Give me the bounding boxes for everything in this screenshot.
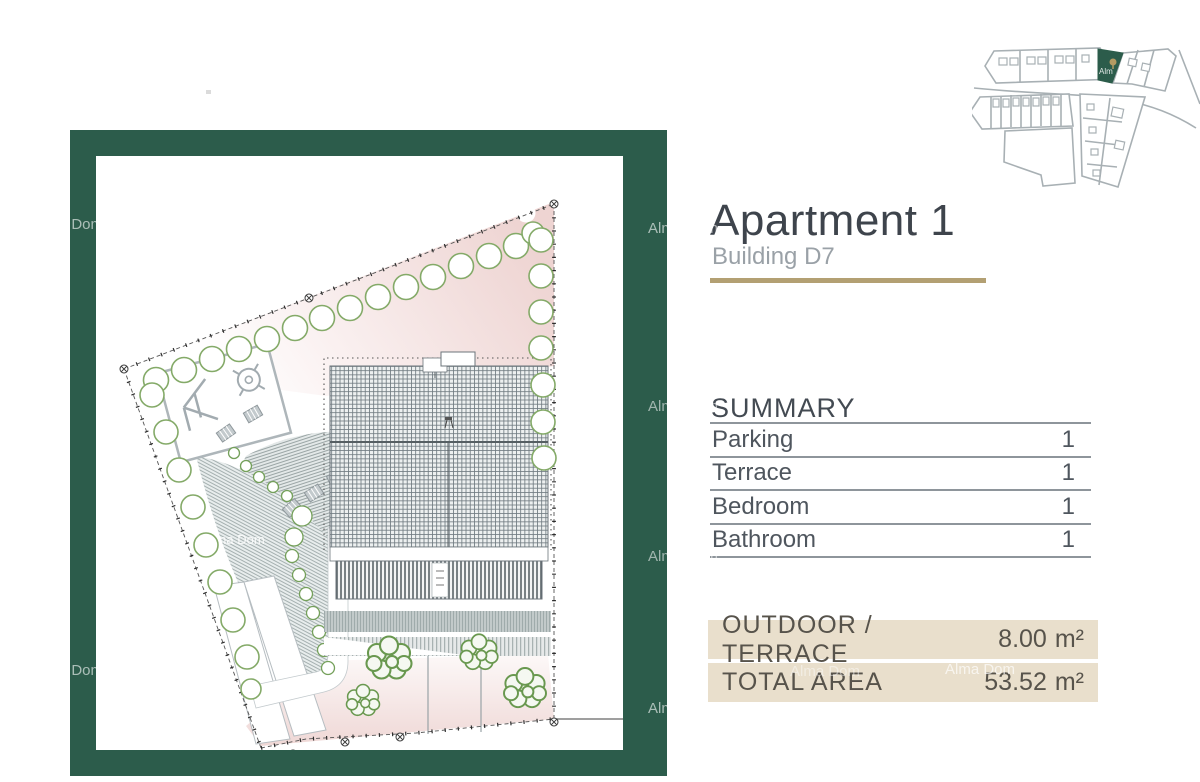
bar-label: TOTAL AREA	[722, 668, 883, 697]
row-label: Parking	[710, 426, 793, 454]
driveway-strip	[324, 611, 551, 632]
page-title: Apartment 1	[710, 196, 955, 246]
site-location-minimap: Alm	[972, 36, 1200, 196]
row-label: Terrace	[710, 459, 792, 487]
row-value: 1	[1062, 459, 1091, 487]
gold-divider	[710, 278, 986, 283]
bar-value: 8.00m²	[998, 625, 1084, 654]
site-plan-drawing: Alma Dom	[96, 156, 623, 750]
minimap-plots	[972, 48, 1200, 187]
outdoor-terrace-bar: OUTDOOR / TERRACE 8.00m²	[708, 620, 1098, 659]
table-row: Terrace 1	[710, 458, 1091, 492]
building-d7-plan	[324, 352, 551, 656]
row-value: 1	[1062, 526, 1091, 554]
site-plan-panel: Alma Dom	[70, 130, 667, 776]
row-value: 1	[1062, 493, 1091, 521]
row-value: 1	[1062, 426, 1091, 454]
tree-marker-icon	[1110, 59, 1117, 66]
row-label: Bathroom	[710, 526, 816, 554]
total-area-bar: TOTAL AREA 53.52m²	[708, 663, 1098, 702]
table-row: Bedroom 1	[710, 491, 1091, 525]
print-speck	[206, 90, 211, 94]
building-subtitle: Building D7	[712, 243, 835, 271]
table-row: Bathroom 1	[710, 525, 1091, 559]
page: Alma Dom	[0, 0, 1200, 782]
row-label: Bedroom	[710, 493, 809, 521]
bar-label: OUTDOOR / TERRACE	[722, 611, 998, 669]
roof-skylight	[441, 352, 475, 366]
minimap-watermark: Alm	[1099, 67, 1113, 76]
bar-value: 53.52m²	[984, 668, 1084, 697]
building-roof	[330, 366, 548, 547]
summary-table: Parking 1 Terrace 1 Bedroom 1 Bathroom 1	[710, 422, 1091, 558]
table-row: Parking 1	[710, 424, 1091, 458]
summary-heading: SUMMARY	[711, 393, 856, 424]
